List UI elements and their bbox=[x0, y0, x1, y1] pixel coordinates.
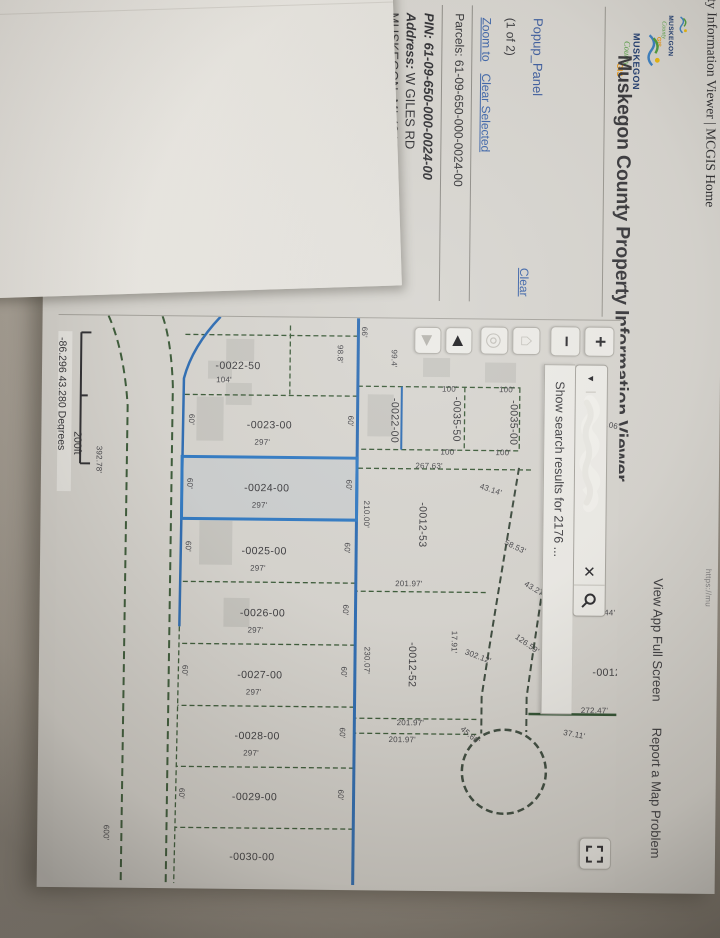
dimension-label: 60' bbox=[338, 727, 347, 738]
parcel-label: -0012 bbox=[592, 667, 620, 679]
dimension-label: 297' bbox=[250, 564, 266, 573]
photo-of-printed-screenshot: erty Information Viewer | MCGIS Home htt… bbox=[0, 0, 720, 938]
dimension-label: 98.8' bbox=[336, 345, 345, 363]
fullscreen-button[interactable] bbox=[579, 838, 611, 870]
popup-pager: (1 of 2) bbox=[503, 18, 517, 56]
dimension-label: 60' bbox=[344, 480, 353, 491]
locate-icon: ◎ bbox=[483, 332, 506, 349]
search-source-dropdown[interactable]: ▼ bbox=[586, 366, 596, 393]
dimension-label: 104' bbox=[216, 375, 232, 384]
report-map-problem-link[interactable]: Report a Map Problem bbox=[648, 728, 664, 859]
dimension-label: 60' bbox=[339, 666, 348, 677]
header-divider bbox=[602, 7, 606, 317]
dimension-label: 60' bbox=[346, 416, 355, 427]
dimension-label: 201.97' bbox=[395, 579, 422, 588]
parcel-label: -0035-00 bbox=[507, 400, 519, 445]
home-button[interactable]: ⌂ bbox=[512, 327, 540, 355]
parcel-label: -0012-52 bbox=[406, 642, 418, 687]
dimension-label: 201.97' bbox=[388, 735, 415, 744]
fullscreen-icon bbox=[586, 845, 603, 862]
dimension-label: 392.78' bbox=[94, 446, 103, 473]
logo-graphic bbox=[645, 33, 661, 67]
dimension-label: 60' bbox=[180, 665, 189, 676]
previous-extent-button[interactable]: ◀ bbox=[445, 327, 472, 354]
parcel-label: -0023-00 bbox=[247, 419, 292, 431]
popup-panel-title: Popup_Panel bbox=[530, 18, 546, 96]
next-extent-button[interactable]: ▶ bbox=[414, 327, 441, 354]
search-submit-button[interactable] bbox=[573, 584, 604, 615]
redaction-scribble bbox=[574, 392, 607, 542]
header-links: View App Full ScreenReport a Map Problem bbox=[648, 578, 666, 884]
dimension-label: 100' bbox=[440, 448, 456, 457]
print-header-title: erty Information Viewer | MCGIS Home bbox=[695, 0, 720, 888]
panel-divider bbox=[439, 5, 443, 301]
search-suggestion-item[interactable]: Show search results for 2176 ... bbox=[540, 364, 575, 714]
dimension-label: 100' bbox=[499, 385, 515, 394]
print-header-url: https://mu bbox=[704, 569, 713, 607]
search-clear-button[interactable]: ✕ bbox=[580, 559, 598, 585]
panel-divider bbox=[469, 5, 473, 301]
dimension-label: 66' bbox=[360, 327, 369, 338]
clear-selected-link[interactable]: Clear Selected bbox=[478, 73, 493, 152]
dimension-label: 17.91' bbox=[450, 631, 459, 654]
dimension-label: 297' bbox=[246, 688, 262, 697]
chevron-down-icon: ▼ bbox=[586, 374, 596, 383]
address-value: Address: W GILES RD bbox=[402, 13, 418, 150]
dimension-label: 60' bbox=[343, 543, 352, 554]
home-icon: ⌂ bbox=[515, 335, 537, 347]
search-icon bbox=[581, 593, 597, 609]
scale-label: 200ft bbox=[71, 431, 83, 454]
parcel-label: -0024-00 bbox=[244, 482, 289, 494]
plus-icon: + bbox=[588, 336, 610, 347]
zoom-out-button[interactable]: − bbox=[550, 326, 580, 356]
parcel-label: -0028-00 bbox=[235, 730, 280, 742]
dimension-label: 201.97' bbox=[397, 718, 424, 727]
suggestion-text: Show search results for 2176 ... bbox=[551, 381, 567, 557]
close-icon: ✕ bbox=[580, 565, 597, 578]
map-canvas[interactable]: -0022-50-0023-00-0024-00-0025-00-0026-00… bbox=[53, 314, 621, 888]
parcels-value: Parcels: 61-09-650-000-0024-00 bbox=[451, 13, 467, 187]
search-input-redacted[interactable] bbox=[574, 392, 607, 558]
dimension-label: 272.47' bbox=[581, 706, 608, 715]
zoom-in-button[interactable]: + bbox=[584, 327, 614, 357]
dimension-label: 60' bbox=[185, 478, 194, 489]
zoom-to-link[interactable]: Zoom to bbox=[479, 17, 493, 61]
parcel-map-drawing bbox=[53, 315, 621, 888]
dimension-label: 297' bbox=[243, 749, 259, 758]
clear-link[interactable]: Clear bbox=[517, 268, 531, 297]
dimension-label: 600' bbox=[102, 825, 111, 841]
dimension-label: 230.07' bbox=[362, 647, 371, 674]
dimension-label: 60' bbox=[187, 414, 196, 425]
dimension-label: 60' bbox=[177, 788, 186, 799]
white-paper-overlay bbox=[0, 0, 402, 298]
dimension-label: 60' bbox=[184, 541, 193, 552]
dimension-label: 60' bbox=[341, 605, 350, 616]
dimension-label: 100' bbox=[442, 385, 458, 394]
dimension-label: 210.00' bbox=[362, 501, 371, 528]
parcel-label: -0030-00 bbox=[229, 851, 274, 863]
parcel-label: -0027-00 bbox=[237, 669, 282, 681]
locate-button[interactable]: ◎ bbox=[480, 326, 508, 354]
logo-graphic bbox=[677, 16, 687, 35]
parcel-label: -0035-50 bbox=[450, 397, 462, 442]
dimension-label: 267.63' bbox=[415, 461, 442, 470]
dimension-label: 297' bbox=[252, 501, 268, 510]
parcel-label: -0022-50 bbox=[215, 360, 260, 372]
parcel-label: -0025-00 bbox=[241, 545, 286, 557]
pin-value: PIN: 61-09-650-000-0024-00 bbox=[420, 13, 437, 180]
dimension-label: 100' bbox=[495, 448, 511, 457]
search-bar[interactable]: ▼ ✕ bbox=[572, 364, 608, 616]
minus-icon: − bbox=[554, 336, 576, 347]
muskegon-county-gis-logo-small: MUSKEGON County GIS bbox=[661, 15, 687, 58]
view-app-full-screen-link[interactable]: View App Full Screen bbox=[650, 578, 666, 701]
dimension-label: 99.4' bbox=[390, 349, 399, 367]
arrow-left-icon: ◀ bbox=[451, 336, 467, 346]
parcel-label: -0022-00 bbox=[388, 398, 400, 443]
parcel-label: -0012-53 bbox=[416, 502, 428, 547]
arrow-right-icon: ▶ bbox=[420, 335, 436, 345]
parcel-label: -0029-00 bbox=[232, 791, 277, 803]
parcel-label: -0026-00 bbox=[240, 607, 285, 619]
dimension-label: 60' bbox=[336, 789, 345, 800]
coordinate-readout: -86.296 43.280 Degrees bbox=[53, 331, 73, 491]
dimension-label: 297' bbox=[247, 626, 263, 635]
dimension-label: 297' bbox=[254, 438, 270, 447]
